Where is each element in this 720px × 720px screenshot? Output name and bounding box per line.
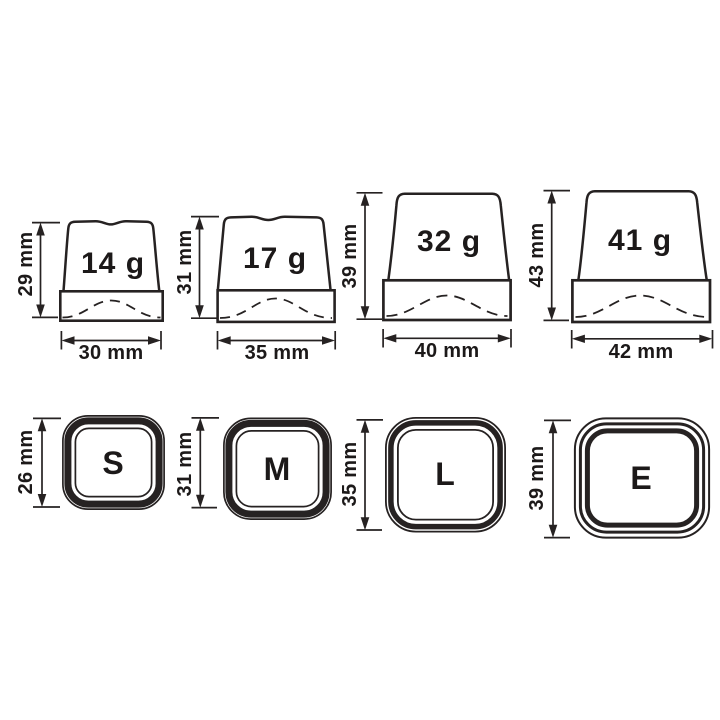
side-height-label-4: 43 mm [527, 223, 547, 288]
weight-label-3: 32 g [417, 227, 481, 257]
base-curve [387, 296, 508, 317]
base-curve [63, 301, 161, 318]
base-curve [220, 299, 332, 319]
side-height-label-1: 29 mm [16, 232, 36, 297]
top-view-letter-1: S [102, 447, 123, 479]
side-width-label-3: 40 mm [415, 341, 480, 361]
side-width-label-2: 35 mm [245, 343, 310, 363]
side-height-label-2: 31 mm [175, 230, 195, 295]
weight-label-2: 17 g [243, 244, 307, 274]
ice-cube-size-diagram: 14 g 17 g 32 g 41 g 29 mm 31 mm 39 mm 43… [0, 0, 720, 720]
top-view-size-label-1: 26 mm [16, 430, 36, 495]
side-height-label-3: 39 mm [340, 224, 360, 289]
top-view-size-label-3: 35 mm [340, 442, 360, 507]
top-view-letter-4: E [630, 462, 651, 494]
top-view-letter-2: M [264, 453, 291, 485]
cube-base [218, 290, 335, 322]
side-width-label-1: 30 mm [79, 343, 144, 363]
weight-label-1: 14 g [81, 249, 145, 279]
cube-base [60, 291, 162, 320]
base-curve [576, 296, 708, 318]
top-view-size-label-4: 39 mm [527, 446, 547, 511]
top-view-height-dimension-1 [33, 418, 61, 507]
top-view-size-label-2: 31 mm [175, 432, 195, 497]
top-view-height-dimension-4 [544, 420, 571, 537]
cube-base [572, 280, 710, 322]
top-view-letter-3: L [435, 458, 455, 490]
weight-label-4: 41 g [608, 226, 672, 256]
side-width-label-4: 42 mm [609, 342, 674, 362]
